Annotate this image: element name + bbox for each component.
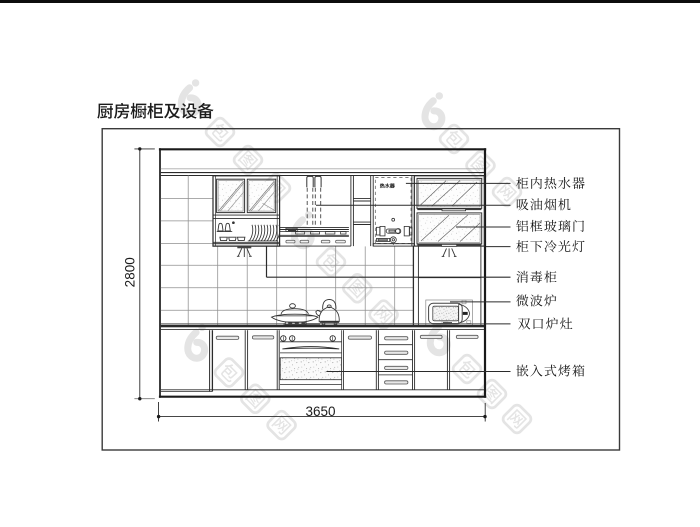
svg-text:2800: 2800 (123, 257, 138, 287)
svg-text:3650: 3650 (305, 404, 335, 419)
